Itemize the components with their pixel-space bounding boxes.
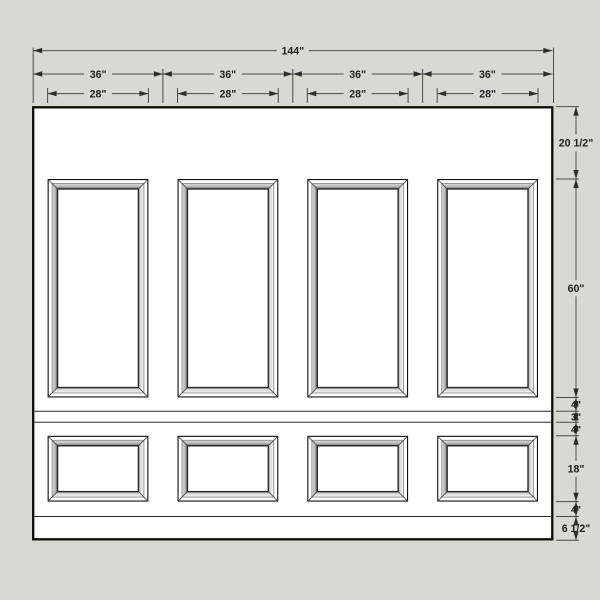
svg-text:4": 4" bbox=[571, 425, 581, 436]
svg-text:60": 60" bbox=[568, 283, 585, 295]
svg-text:4": 4" bbox=[571, 505, 581, 516]
svg-text:4": 4" bbox=[571, 400, 581, 411]
svg-text:36": 36" bbox=[349, 69, 366, 81]
svg-text:18": 18" bbox=[568, 464, 585, 476]
svg-text:28": 28" bbox=[219, 88, 236, 100]
svg-text:28": 28" bbox=[90, 88, 107, 100]
svg-text:36": 36" bbox=[219, 69, 236, 81]
svg-text:144": 144" bbox=[281, 45, 304, 57]
svg-text:28": 28" bbox=[479, 88, 496, 100]
svg-text:28": 28" bbox=[349, 88, 366, 100]
svg-text:3": 3" bbox=[571, 413, 581, 424]
svg-text:6 1/2": 6 1/2" bbox=[562, 523, 591, 535]
svg-text:36": 36" bbox=[90, 69, 107, 81]
svg-text:20 1/2": 20 1/2" bbox=[559, 138, 593, 150]
svg-text:36": 36" bbox=[479, 69, 496, 81]
